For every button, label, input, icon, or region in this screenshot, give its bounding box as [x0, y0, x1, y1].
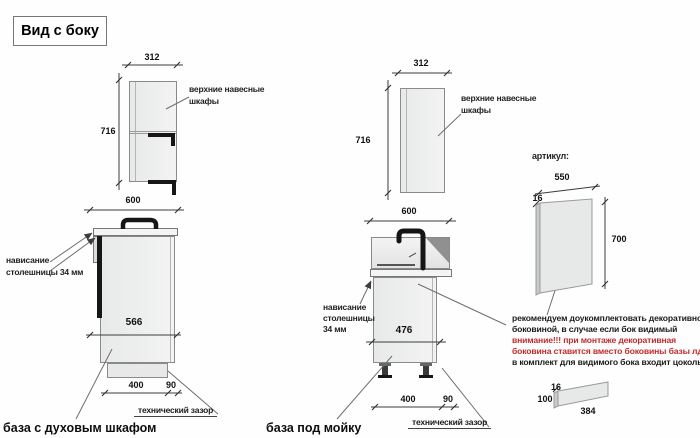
door-handle-bracket-top-drop: [171, 137, 175, 146]
note-line-4-warning: боковина ставится вместо боковины базы л…: [512, 346, 700, 357]
artikul-heading: артикул:: [532, 151, 569, 163]
dim-height-wall-left: 716: [97, 126, 119, 136]
dim-depth-sink-base: 476: [389, 325, 419, 336]
dim-plinth-panel-length: 384: [575, 406, 601, 416]
adjustable-leg-stem: [423, 366, 429, 375]
dim-gap-oven-base: 90: [160, 380, 182, 390]
note-line-3-warning: внимание!!! при монтаже декоративная: [512, 335, 700, 346]
note-line-5: в комплект для видимого бока входит цоко…: [512, 357, 700, 368]
sink-base-countertop: [370, 269, 452, 277]
wall-cabinet-middle-inner-edge: [406, 89, 407, 192]
wall-cabinet-label-left: верхние навесные шкафы: [189, 84, 264, 107]
adjustable-leg-stem: [382, 366, 388, 375]
sink-rim-line: [377, 264, 415, 266]
dim-plinth-oven-base: 400: [121, 380, 151, 390]
dim-gap-sink-base: 90: [437, 394, 459, 404]
side-panel-face: [540, 199, 592, 293]
dim-top-width-sink-base: 600: [394, 206, 424, 216]
dim-panel-thickness: 16: [530, 193, 545, 203]
oven-door-strip: [97, 236, 102, 318]
sink-base-body: [373, 277, 437, 363]
oven-base-countertop: [93, 228, 178, 236]
door-handle-bracket-bottom-drop: [172, 184, 176, 195]
tech-gap-label-left: технический зазор: [134, 405, 217, 417]
tech-gap-label-middle: технический зазор: [408, 417, 491, 429]
caption-sink-base: база под мойку: [266, 421, 361, 435]
title-box: Вид с боку: [13, 16, 107, 46]
oven-base-plinth: [107, 363, 168, 378]
note-line-2: боковиной, в случае если бок видимый: [512, 324, 700, 335]
adjustable-leg-foot: [419, 375, 433, 378]
note-line-1: рекомендуем доукомплектовать декоративно…: [512, 313, 700, 324]
note-text: рекомендуем доукомплектовать декоративно…: [512, 313, 700, 368]
dim-width-wall-left: 312: [137, 52, 167, 62]
side-panel-edge: [536, 203, 540, 295]
plinth-panel-face: [558, 382, 608, 406]
dim-width-wall-middle: 312: [406, 58, 436, 68]
overhang-label-left: нависание столешницы 34 мм: [6, 254, 83, 278]
adjustable-leg-foot: [378, 375, 392, 378]
dim-depth-oven-base: 566: [119, 317, 149, 328]
caption-oven-base: база с духовым шкафом: [3, 421, 156, 435]
dim-plinth-panel-height: 100: [534, 394, 556, 404]
drawing-lines-layer: [0, 0, 700, 438]
dim-panel-width: 550: [549, 172, 575, 182]
dim-plinth-sink-base: 400: [393, 394, 423, 404]
wall-cabinet-label-middle: верхние навесные шкафы: [461, 93, 536, 116]
oven-base-body: [100, 236, 175, 363]
side-view-drawing: Вид с боку 312 716 верхние навесные шкаф…: [0, 0, 700, 438]
overhang-label-middle: нависание столешницы 34 мм: [323, 302, 375, 335]
dim-top-width-oven-base: 600: [118, 195, 148, 205]
dim-height-wall-middle: 716: [352, 135, 374, 145]
dim-plinth-panel-thickness: 16: [548, 382, 564, 392]
dim-panel-height: 700: [607, 234, 631, 244]
sink-base-inner-edge: [432, 278, 433, 362]
oven-base-inner-edge: [170, 237, 171, 362]
page-title: Вид с боку: [21, 23, 99, 39]
